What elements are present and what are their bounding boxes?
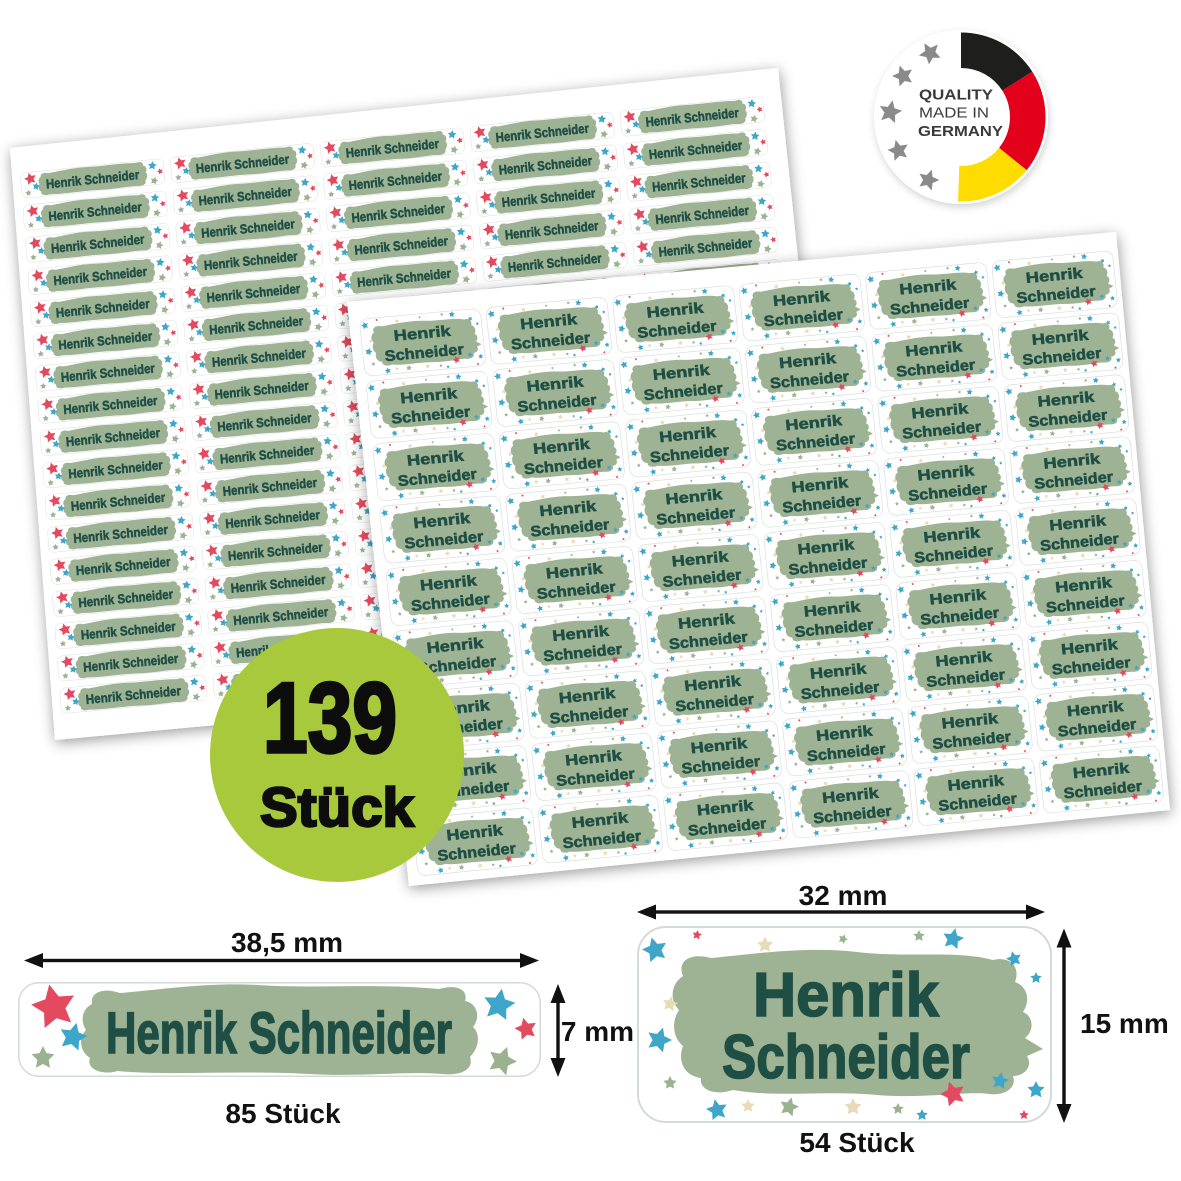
svg-text:GERMANY: GERMANY: [918, 123, 1003, 140]
svg-text:32 mm: 32 mm: [799, 880, 888, 911]
svg-text:7 mm: 7 mm: [561, 1016, 634, 1047]
svg-text:Stück: Stück: [260, 776, 414, 838]
svg-text:MADE IN: MADE IN: [919, 106, 989, 122]
svg-text:139: 139: [263, 662, 397, 773]
svg-text:85 Stück: 85 Stück: [225, 1098, 341, 1129]
svg-text:38,5 mm: 38,5 mm: [231, 927, 343, 958]
svg-text:15 mm: 15 mm: [1080, 1008, 1169, 1039]
svg-text:54 Stück: 54 Stück: [799, 1127, 915, 1158]
svg-text:QUALITY: QUALITY: [919, 87, 993, 104]
